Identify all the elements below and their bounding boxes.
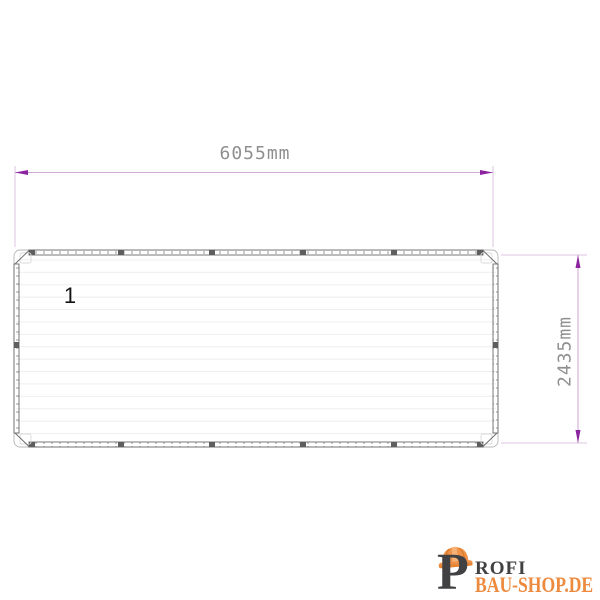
roof-panel-lines xyxy=(16,256,496,443)
technical-drawing-page: 6055mm 2435mm 1 P ROFI BAU-SHOP.DE xyxy=(0,0,600,600)
logo-text-bau-shop-de: BAU-SHOP.DE xyxy=(475,574,593,596)
profi-bau-shop-logo: P ROFI BAU-SHOP.DE xyxy=(434,543,596,598)
logo-letter-p: P xyxy=(437,547,469,599)
width-dimension-label: 6055mm xyxy=(180,143,330,164)
width-dimension-lines xyxy=(15,166,493,247)
container-top-view-drawing xyxy=(0,0,600,600)
part-number-label: 1 xyxy=(58,283,82,309)
height-dimension-label: 2435mm xyxy=(555,277,576,427)
